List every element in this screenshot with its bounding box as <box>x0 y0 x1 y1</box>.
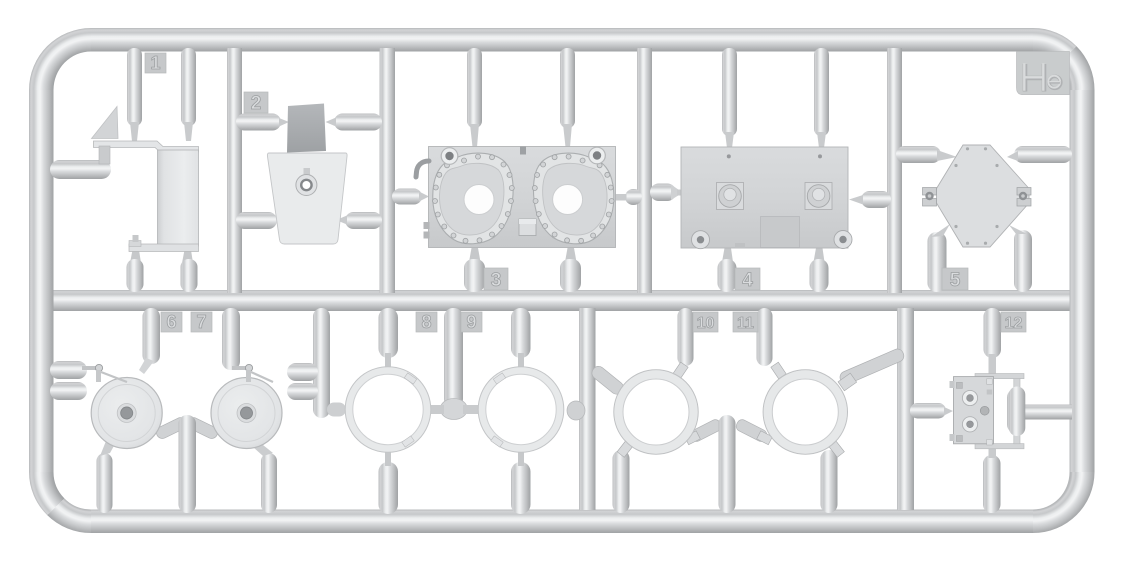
svg-text:7: 7 <box>196 312 206 332</box>
svg-text:1: 1 <box>150 53 160 73</box>
svg-text:6: 6 <box>166 312 176 332</box>
svg-text:2: 2 <box>251 93 262 114</box>
svg-text:9: 9 <box>466 312 476 332</box>
svg-text:8: 8 <box>421 312 431 332</box>
svg-text:10: 10 <box>697 315 715 332</box>
svg-text:3: 3 <box>491 270 502 291</box>
svg-text:4: 4 <box>742 270 753 291</box>
svg-text:12: 12 <box>1005 315 1023 332</box>
svg-text:5: 5 <box>950 270 961 291</box>
svg-text:11: 11 <box>737 315 754 332</box>
